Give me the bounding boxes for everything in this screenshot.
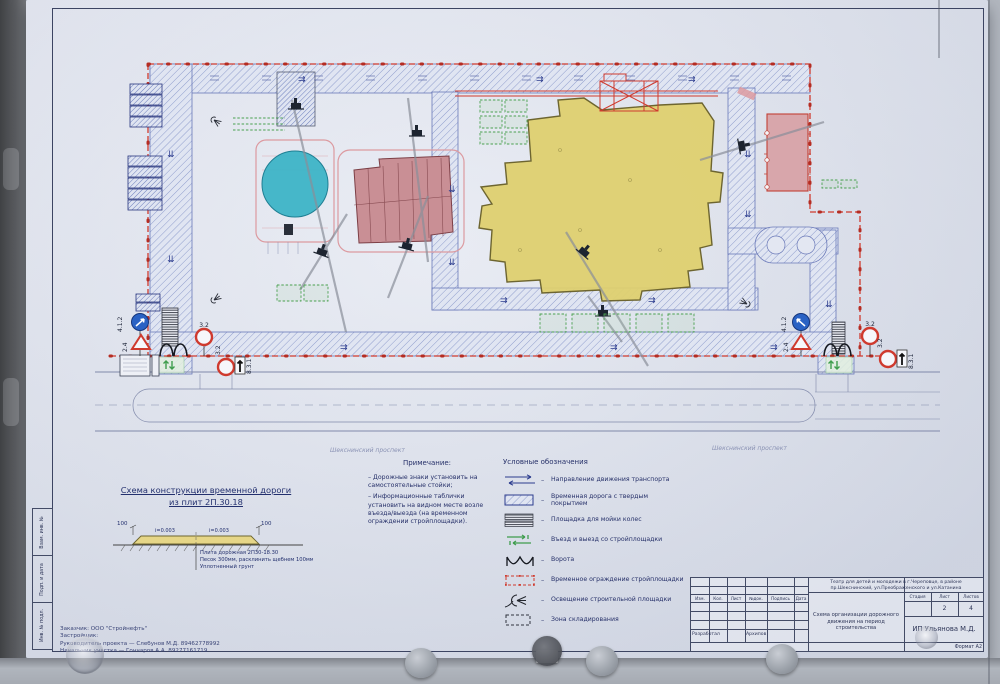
sheet-label: Лист: [931, 592, 958, 601]
svg-text:⇉: ⇉: [688, 75, 696, 85]
legend-title: Условные обозначения: [503, 458, 685, 466]
sheets-total: 4: [958, 602, 984, 615]
sign-no-entry: [880, 351, 896, 367]
svg-text:⇉: ⇉: [165, 255, 175, 263]
entry-exit-icon: [503, 532, 537, 548]
callout-3: Уплотненный грунт: [200, 563, 254, 570]
svg-text:⇉: ⇉: [446, 185, 456, 193]
rev-header: Изм.: [691, 594, 709, 602]
legend-dash: –: [541, 476, 547, 484]
svg-text:⇉: ⇉: [823, 300, 833, 308]
slope-right: i=0.003: [209, 528, 229, 534]
side-label-inv: Инв. № подл.: [40, 608, 45, 641]
sheets-label: Листов: [958, 592, 984, 601]
legend-dash: –: [541, 516, 547, 524]
rev-header: Подпись: [767, 594, 794, 602]
street-name-left: Шекснинский проспект: [330, 447, 405, 454]
dim-left: 100: [117, 521, 128, 527]
note-item: – Информационные таблички установить на …: [368, 493, 486, 526]
legend-block: Условные обозначения – Направление движе…: [503, 458, 685, 628]
info-board: [152, 355, 159, 376]
legend-dash: –: [541, 556, 547, 564]
gate-icon: [503, 552, 537, 568]
svg-text:⇉: ⇉: [610, 343, 618, 353]
temp-fence-icon: [503, 572, 537, 588]
callout-2: Песок 300мм, расклинить щебнем 100мм: [200, 557, 313, 563]
legend-dash: –: [541, 596, 547, 604]
rev-header: Лист: [727, 594, 745, 602]
sheet-number: 2: [931, 602, 958, 615]
title-block: Изм. Кол. Лист №док. Подпись Дата Разраб…: [690, 577, 984, 652]
svg-text:⇉: ⇉: [742, 210, 752, 218]
legend-dash: –: [541, 496, 547, 504]
notes-block: Примечание: – Дорожные знаки установить …: [368, 459, 486, 529]
svg-text:⇉: ⇉: [500, 296, 508, 306]
sign-label-no-entry: 3.2: [865, 321, 875, 328]
sign-no-entry: [218, 359, 234, 375]
wheel-wash-pad: [162, 308, 178, 346]
legend-dash: –: [541, 576, 547, 584]
magnet: [405, 648, 437, 678]
street-name-right: Шекснинский проспект: [712, 445, 787, 452]
sheet-title: Схема организации дорожного движения на …: [810, 606, 902, 638]
cross-section-title-line1: Схема конструкции временной дороги: [100, 484, 312, 496]
svg-text:⇉: ⇉: [742, 150, 752, 158]
photo-of-drawing: Взам. инв. № Подп. и дата Инв. № подл.: [0, 0, 1000, 684]
entrance-right: 4.1.2 2.4 3.2 3.2 8.3.1: [781, 314, 915, 374]
dark-seal: [532, 636, 562, 666]
rev-header: Кол.: [709, 594, 727, 602]
legend-label: Временное ограждение стройплощадки: [551, 576, 684, 583]
water-tank-area: [256, 140, 334, 254]
floodlight-icon: [503, 592, 537, 608]
storage-zone-icon: [503, 612, 537, 628]
legend-label: Площадка для мойки колес: [551, 516, 642, 523]
svg-text:⇉: ⇉: [340, 343, 348, 353]
legend-row-fence: – Временное ограждение стройплощадки: [503, 572, 685, 588]
magnet: [586, 646, 618, 676]
sign-no-entry: [196, 329, 212, 345]
sign-label-no-entry: 3.2: [877, 338, 884, 348]
embossed-seal: [66, 636, 104, 674]
developer-role: Разработал: [692, 630, 744, 639]
legend-row-storage: – Зона складирования: [503, 612, 685, 628]
legend-label: Направление движения транспорта: [551, 476, 669, 483]
svg-text:⇉: ⇉: [648, 296, 656, 306]
legend-row-wheel-wash: – Площадка для мойки колес: [503, 512, 685, 528]
cross-section-title-line2: из плит 2П.30.18: [100, 496, 312, 508]
metal-seam: [988, 0, 990, 684]
legend-dash: –: [541, 536, 547, 544]
sign-no-entry: [862, 328, 878, 344]
legend-label: Въезд и выезд со стройплощадки: [551, 536, 662, 543]
stage-label: Стадия: [904, 592, 931, 601]
sign-label-plate: 8.3.1: [908, 354, 915, 369]
legend-row-direction: – Направление движения транспорта: [503, 472, 685, 488]
legend-row-lighting: – Освещение строительной площадки: [503, 592, 685, 608]
rev-header: №док.: [745, 594, 767, 602]
side-label-podp: Подп. и дата: [40, 563, 45, 596]
legend-label: Зона складирования: [551, 616, 619, 623]
notes-title: Примечание:: [368, 459, 486, 467]
sign-label-give-way: 2.4: [783, 342, 790, 352]
project-name: Театр для детей и молодежи в г.Череповце…: [810, 579, 982, 592]
direction-arrows-icon: [503, 472, 537, 488]
metal-seam: [938, 0, 940, 58]
developer-line: Застройщик:: [60, 633, 320, 640]
legend-label: Освещение строительной площадки: [551, 596, 671, 603]
svg-text:⇉: ⇉: [298, 75, 306, 85]
water-tank: [262, 151, 328, 217]
cross-section-title: Схема конструкции временной дороги из пл…: [100, 484, 312, 508]
sign-label-route: 4.1.2: [781, 317, 788, 332]
sign-label-plate: 8.3.1: [246, 359, 253, 374]
frame-side-column: Взам. инв. № Подп. и дата Инв. № подл.: [32, 508, 53, 650]
magnet: [766, 644, 798, 674]
customer-line: Заказчик: ООО "Стройнефть": [60, 626, 320, 633]
svg-text:⇉: ⇉: [446, 258, 456, 266]
svg-text:⇉: ⇉: [770, 343, 778, 353]
sign-label-no-entry: 3.2: [199, 322, 209, 329]
existing-street: [95, 372, 940, 431]
svg-text:⇉: ⇉: [536, 75, 544, 85]
sign-label-no-entry: 3.2: [215, 345, 222, 355]
legend-row-gate: – Ворота: [503, 552, 685, 568]
legend-label: Временная дорога с твердым покрытием: [551, 493, 685, 508]
legend-dash: –: [541, 616, 547, 624]
sign-label-route: 4.1.2: [117, 317, 124, 332]
wheel-wash-icon: [503, 512, 537, 528]
cross-section-drawing: 100 100 i=0.003 i=0.003 Плита дорожная 2…: [103, 508, 313, 574]
embossed-seal: [915, 626, 938, 649]
info-board: [120, 355, 150, 376]
developer-name: Архипов: [746, 630, 792, 639]
legend-label: Ворота: [551, 556, 574, 563]
sign-label-give-way: 2.4: [122, 342, 129, 352]
svg-text:⇉: ⇉: [165, 150, 175, 158]
legend-row-temp-road: – Временная дорога с твердым покрытием: [503, 492, 685, 508]
side-label-vzam: Взам. инв. №: [40, 516, 45, 549]
rev-header: Дата: [794, 594, 808, 602]
temp-road-icon: [503, 492, 537, 508]
slope-left: i=0.003: [155, 528, 175, 534]
dim-right: 100: [261, 521, 272, 527]
note-item: – Дорожные знаки установить на самостоят…: [368, 474, 486, 490]
callout-1: Плита дорожная 2П30-18.30: [200, 550, 278, 556]
legend-row-entry-exit: – Въезд и выезд со стройплощадки: [503, 532, 685, 548]
